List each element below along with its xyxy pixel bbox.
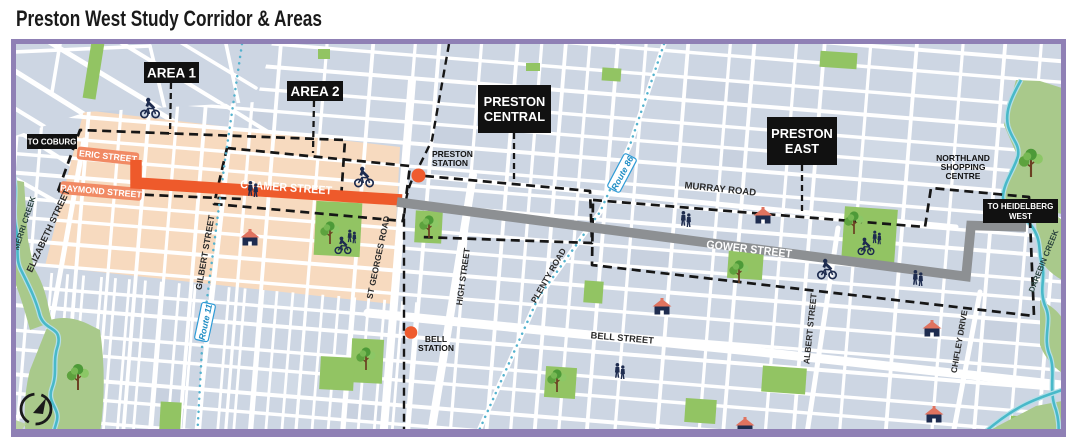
svg-text:PRESTON: PRESTON [484,94,546,109]
svg-text:TO HEIDELBERG: TO HEIDELBERG [988,202,1054,211]
svg-text:CENTRE: CENTRE [946,171,981,181]
svg-text:CENTRAL: CENTRAL [484,109,545,124]
svg-text:STATION: STATION [418,343,454,353]
svg-text:AREA 2: AREA 2 [290,84,339,99]
svg-text:STATION: STATION [432,158,468,168]
svg-text:WEST: WEST [1009,212,1032,221]
svg-text:TO COBURG: TO COBURG [28,137,77,146]
svg-text:EAST: EAST [785,141,819,156]
svg-text:Preston West Study Corridor &: Preston West Study Corridor & Areas [16,6,322,31]
svg-text:PRESTON: PRESTON [771,126,833,141]
svg-text:AREA 1: AREA 1 [147,65,197,80]
